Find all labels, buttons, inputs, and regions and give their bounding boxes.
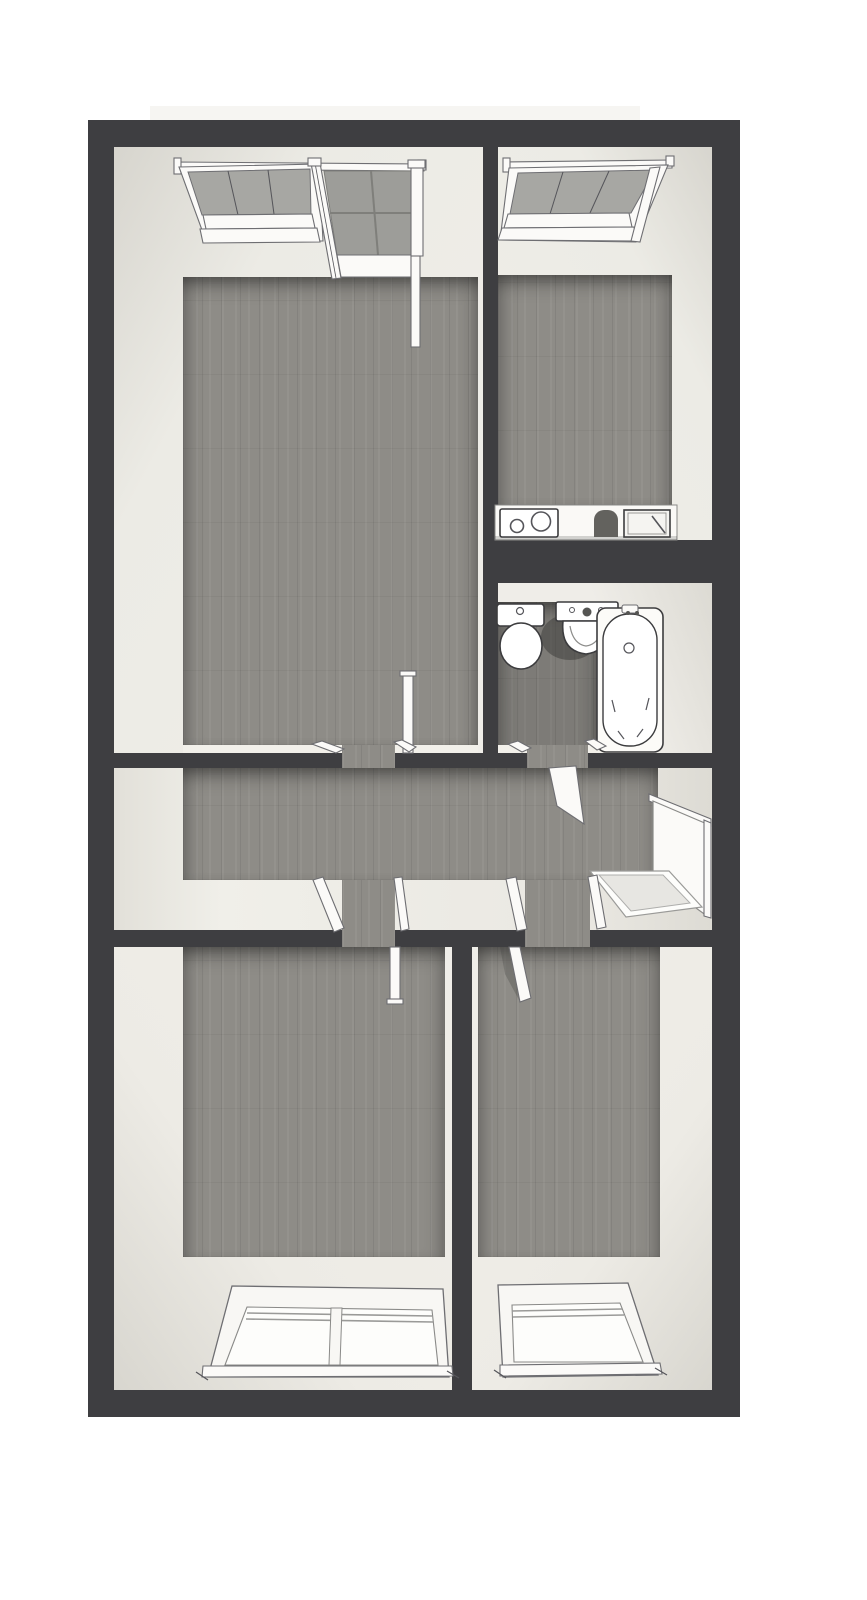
wall-between-bedrooms (452, 930, 472, 1390)
wall-living-kitchen (483, 147, 498, 768)
living-room-floor (183, 277, 478, 745)
wall-hallway-bedrooms (114, 930, 712, 947)
door-opening-bath-hall (527, 745, 588, 768)
door-opening-living-hall (342, 745, 395, 768)
floor-plan-canvas (0, 0, 867, 1600)
bathroom-floor (498, 602, 597, 753)
wall-toprooms-hallway (114, 753, 712, 768)
door-opening-hall-bedroom-right (525, 880, 590, 947)
kitchen-floor (498, 275, 672, 505)
door-opening-hall-bedroom-left (342, 880, 395, 947)
bedroom-left-floor (183, 947, 445, 1257)
hallway-floor (183, 768, 658, 880)
wall-top-face-living (183, 745, 478, 753)
bedroom-right-floor (478, 947, 660, 1257)
wall-kitchen-bathroom (483, 540, 712, 583)
